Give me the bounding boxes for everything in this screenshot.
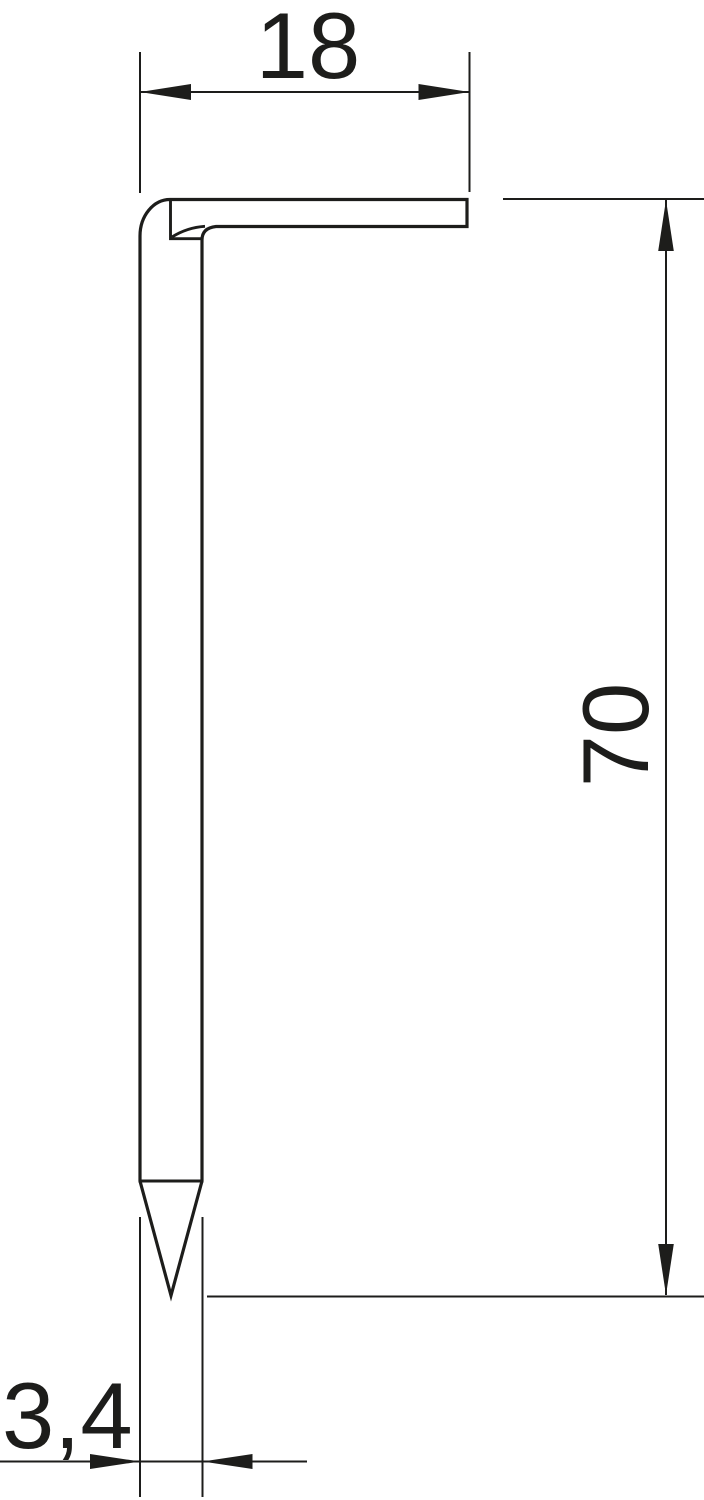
dimension-head-length: 18 xyxy=(140,0,470,193)
arrowhead-right-icon xyxy=(419,84,470,100)
arrowhead-up-icon xyxy=(658,200,674,251)
arrowhead-left-icon xyxy=(140,84,191,100)
hook-nail-outline xyxy=(139,200,468,1296)
arrowhead-down-icon xyxy=(658,1244,674,1295)
dimension-value-head-length: 18 xyxy=(256,0,361,98)
technical-drawing-canvas: 18 70 3,4 xyxy=(0,0,704,1500)
dimension-value-shank-length: 70 xyxy=(563,683,668,788)
arrowhead-left-icon xyxy=(203,1454,253,1469)
dimension-shank-length: 70 xyxy=(207,199,704,1297)
hook-nail-dimension-drawing: 18 70 3,4 xyxy=(0,0,704,1500)
nail-body-path xyxy=(140,200,467,1296)
dimension-shank-diameter: 3,4 xyxy=(0,1217,307,1497)
dimension-value-shank-diameter: 3,4 xyxy=(2,1363,133,1468)
